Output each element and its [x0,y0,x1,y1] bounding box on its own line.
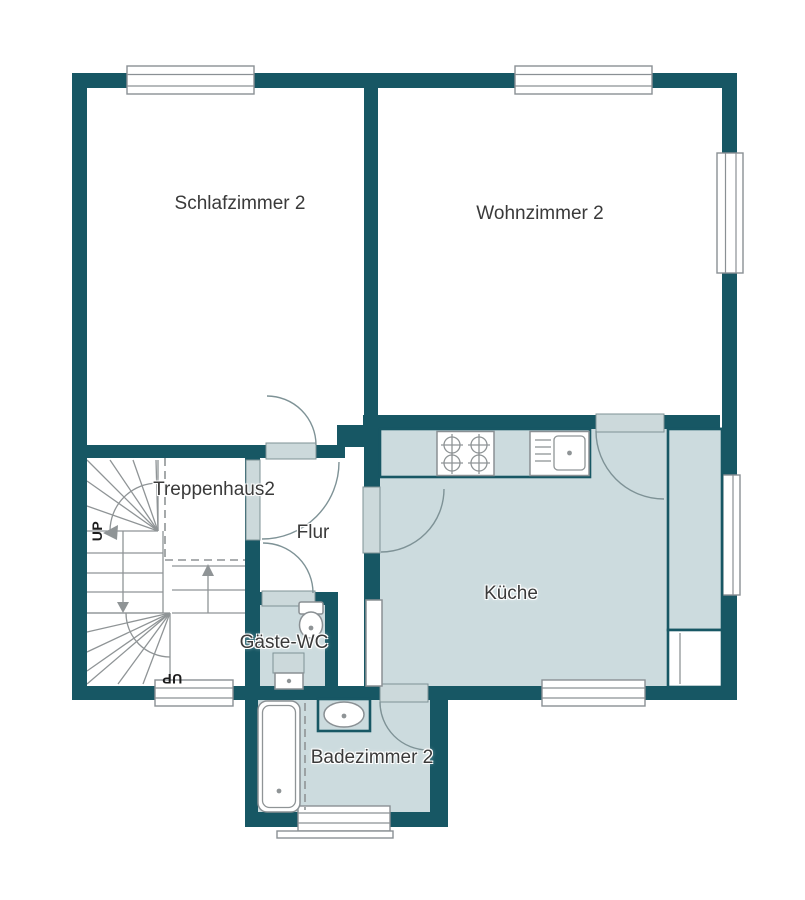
floor-plan: Schlafzimmer 2 Wohnzimmer 2 Treppenhaus2… [0,0,805,900]
kitchen-appliance [668,630,722,687]
window-living-right [717,153,743,273]
washbasin-icon [273,653,304,689]
wall-bedroom-divider [364,88,378,447]
door-bedroom-flur [266,396,316,459]
wall-kitchen-top [363,415,720,429]
stairs-lower-winder [87,613,170,684]
wall-bath-left [245,700,258,812]
label-up-bottom: UP [162,671,182,687]
label-gaeste-wc: Gäste-WC [240,632,329,654]
label-up-top: UP [89,521,105,541]
stove-icon [437,432,494,476]
label-treppenhaus: Treppenhaus2 [153,479,275,501]
label-badezimmer: Badezimmer 2 [311,747,434,769]
stairs-right-treads [172,564,245,613]
kitchen-left-cabinet [366,600,382,686]
bathtub-icon [258,701,305,812]
label-schlafzimmer: Schlafzimmer 2 [175,193,306,215]
bath-sink-icon [318,699,370,731]
door-flur-wc [262,543,315,606]
kitchen-counter-right [668,429,722,630]
window-bedroom-top [127,66,254,94]
window-living-top [515,66,652,94]
sink-icon [530,432,589,476]
label-kueche: Küche [484,583,538,605]
stairs-straight-flight [87,531,163,613]
window-kitchen-bottom [542,680,645,706]
wall-left [72,73,87,700]
label-flur: Flur [297,522,330,544]
label-wohnzimmer: Wohnzimmer 2 [476,203,603,225]
